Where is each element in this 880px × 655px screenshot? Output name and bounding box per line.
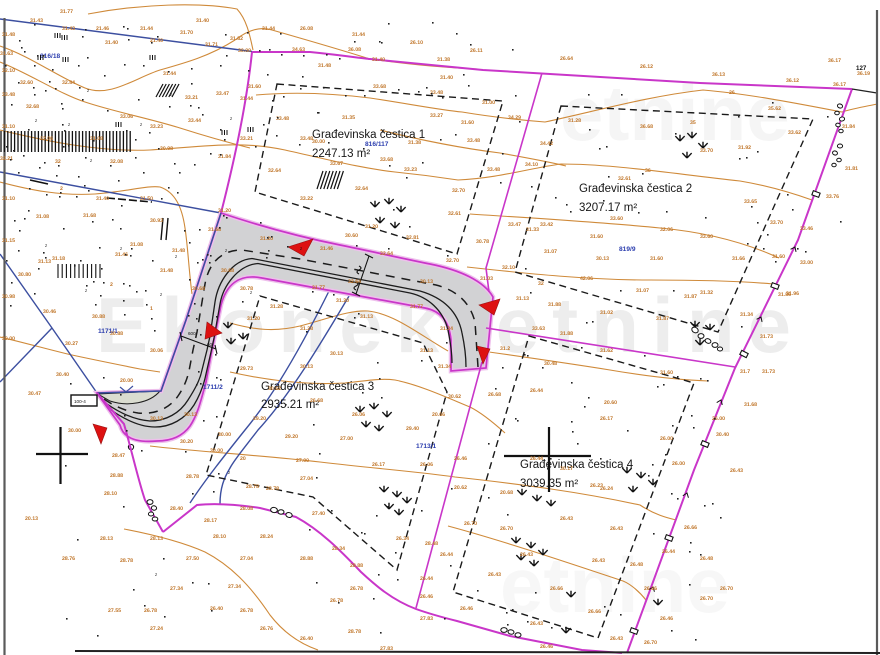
- svg-text:26.66: 26.66: [684, 525, 697, 531]
- svg-text:31.20: 31.20: [365, 224, 378, 230]
- svg-text:31.87: 31.87: [684, 294, 697, 300]
- svg-text:31.48: 31.48: [318, 63, 331, 69]
- svg-text:30.98: 30.98: [160, 146, 173, 152]
- svg-text:30.17: 30.17: [560, 466, 573, 472]
- svg-text:33.48: 33.48: [467, 138, 480, 144]
- svg-text:26.06: 26.06: [420, 462, 433, 468]
- svg-text:26.44: 26.44: [662, 549, 675, 555]
- svg-text:819/9: 819/9: [619, 246, 636, 253]
- svg-text:33.70: 33.70: [770, 220, 783, 226]
- svg-text:30.13: 30.13: [184, 412, 197, 418]
- svg-text:27.34: 27.34: [228, 584, 241, 590]
- svg-text:31.40: 31.40: [440, 75, 453, 81]
- svg-text:36.17: 36.17: [833, 82, 846, 88]
- svg-text:3039.35 m²: 3039.35 m²: [520, 478, 578, 490]
- svg-text:32.81: 32.81: [406, 235, 419, 241]
- svg-text:28.76: 28.76: [62, 556, 75, 562]
- svg-text:26.44: 26.44: [420, 576, 433, 582]
- svg-text:33.68: 33.68: [373, 84, 386, 90]
- svg-text:26.00: 26.00: [712, 416, 725, 422]
- svg-text:31.2: 31.2: [500, 346, 510, 352]
- svg-text:21.46: 21.46: [96, 26, 109, 32]
- svg-text:30.13: 30.13: [330, 351, 343, 357]
- svg-text:31.18: 31.18: [52, 256, 65, 262]
- svg-text:30.68: 30.68: [192, 286, 205, 292]
- svg-text:26.70: 26.70: [700, 596, 713, 602]
- svg-text:28.10: 28.10: [213, 534, 226, 540]
- svg-text:33.42: 33.42: [540, 222, 553, 228]
- svg-text:33.48: 33.48: [300, 136, 313, 142]
- svg-text:32.61: 32.61: [618, 176, 631, 182]
- svg-text:31.43: 31.43: [62, 26, 75, 32]
- svg-text:28.17: 28.17: [204, 518, 217, 524]
- svg-text:32.70: 32.70: [452, 188, 465, 194]
- svg-text:35.62: 35.62: [768, 106, 781, 112]
- svg-text:27.83: 27.83: [420, 616, 433, 622]
- svg-text:26.66: 26.66: [588, 609, 601, 615]
- svg-text:26.76: 26.76: [260, 626, 273, 632]
- svg-text:32.10: 32.10: [502, 265, 515, 271]
- svg-text:32: 32: [538, 281, 544, 287]
- svg-text:27.00: 27.00: [296, 458, 309, 464]
- svg-text:28.40: 28.40: [170, 506, 183, 512]
- svg-text:31.32: 31.32: [700, 290, 713, 296]
- svg-text:26.00: 26.00: [660, 436, 673, 442]
- svg-text:33.67: 33.67: [330, 161, 343, 167]
- svg-text:32.64: 32.64: [355, 186, 368, 192]
- svg-text:31.34: 31.34: [440, 326, 453, 332]
- svg-text:28.34: 28.34: [332, 546, 345, 552]
- svg-text:33.21: 33.21: [240, 136, 253, 142]
- svg-text:etnine: etnine: [500, 541, 730, 629]
- svg-text:31.81: 31.81: [845, 166, 858, 172]
- svg-text:31.28: 31.28: [270, 304, 283, 310]
- svg-text:30.13: 30.13: [596, 256, 609, 262]
- svg-text:33.23: 33.23: [404, 167, 417, 173]
- svg-text:31.08: 31.08: [36, 214, 49, 220]
- svg-text:30.40: 30.40: [716, 432, 729, 438]
- svg-text:100-4: 100-4: [74, 399, 86, 404]
- svg-text:28.78: 28.78: [348, 629, 361, 635]
- svg-text:33.60: 33.60: [700, 234, 713, 240]
- svg-text:30.00: 30.00: [68, 428, 81, 434]
- svg-text:32.60: 32.60: [20, 80, 33, 86]
- svg-text:32.06: 32.06: [660, 227, 673, 233]
- svg-text:32.64: 32.64: [348, 279, 361, 285]
- svg-text:33.00: 33.00: [800, 260, 813, 266]
- svg-text:30.60: 30.60: [345, 233, 358, 239]
- svg-text:26.46: 26.46: [660, 616, 673, 622]
- svg-text:28.47: 28.47: [112, 453, 125, 459]
- svg-text:30.98: 30.98: [2, 294, 15, 300]
- svg-text:26.12: 26.12: [640, 64, 653, 70]
- svg-text:33.62: 33.62: [788, 130, 801, 136]
- svg-text:36: 36: [645, 168, 651, 174]
- svg-text:2247.13 m²: 2247.13 m²: [312, 148, 370, 160]
- svg-text:31.77: 31.77: [60, 9, 73, 15]
- svg-text:26.43: 26.43: [560, 516, 573, 522]
- svg-text:30.00: 30.00: [2, 336, 15, 342]
- svg-text:30.00: 30.00: [312, 139, 325, 145]
- svg-text:30.27: 30.27: [65, 341, 78, 347]
- svg-text:27.83: 27.83: [380, 646, 393, 652]
- svg-text:600: 600: [188, 331, 196, 336]
- svg-text:1711/2: 1711/2: [203, 384, 223, 391]
- svg-text:34.29: 34.29: [508, 115, 521, 121]
- svg-text:26.17: 26.17: [600, 416, 613, 422]
- svg-text:36.19: 36.19: [857, 71, 870, 77]
- svg-text:36.08: 36.08: [348, 47, 361, 53]
- svg-text:30.48: 30.48: [544, 361, 557, 367]
- svg-text:26.48: 26.48: [700, 556, 713, 562]
- svg-text:20.60: 20.60: [604, 400, 617, 406]
- svg-text:20.13: 20.13: [25, 516, 38, 522]
- svg-text:31.88: 31.88: [560, 331, 573, 337]
- svg-text:28.08: 28.08: [240, 506, 253, 512]
- svg-text:31.08: 31.08: [130, 242, 143, 248]
- svg-text:20.00: 20.00: [120, 378, 133, 384]
- svg-text:30.06: 30.06: [150, 348, 163, 354]
- svg-text:31.38: 31.38: [437, 57, 450, 63]
- svg-text:31.48: 31.48: [160, 268, 173, 274]
- svg-text:30.93: 30.93: [150, 218, 163, 224]
- svg-text:32.68: 32.68: [26, 104, 39, 110]
- svg-text:30.20: 30.20: [180, 439, 193, 445]
- svg-text:30.13: 30.13: [150, 416, 163, 422]
- svg-text:31.48: 31.48: [172, 248, 185, 254]
- svg-text:28.78: 28.78: [266, 486, 279, 492]
- svg-text:31.60: 31.60: [248, 84, 261, 90]
- svg-text:36.12: 36.12: [786, 78, 799, 84]
- svg-text:2: 2: [110, 282, 113, 288]
- svg-text:33.06: 33.06: [120, 114, 133, 120]
- svg-text:29.40: 29.40: [406, 426, 419, 432]
- svg-text:26.70: 26.70: [464, 521, 477, 527]
- svg-text:26.43: 26.43: [730, 468, 743, 474]
- svg-text:26.70: 26.70: [500, 526, 513, 532]
- svg-text:31.73: 31.73: [760, 334, 773, 340]
- svg-text:31.60: 31.60: [772, 254, 785, 260]
- svg-text:26.43: 26.43: [610, 526, 623, 532]
- svg-text:28.78: 28.78: [120, 558, 133, 564]
- svg-text:27.55: 27.55: [108, 608, 121, 614]
- svg-text:26.46: 26.46: [540, 644, 553, 650]
- svg-text:27.00: 27.00: [340, 436, 353, 442]
- svg-text:32.70: 32.70: [446, 258, 459, 264]
- svg-text:31.82: 31.82: [230, 36, 243, 42]
- svg-text:2: 2: [60, 186, 63, 192]
- svg-text:31.60: 31.60: [590, 234, 603, 240]
- svg-text:31.44: 31.44: [240, 96, 253, 102]
- svg-text:22.06: 22.06: [40, 136, 53, 142]
- svg-text:28.24: 28.24: [260, 534, 273, 540]
- svg-text:31.08: 31.08: [90, 136, 103, 142]
- svg-text:29.20: 29.20: [253, 416, 266, 422]
- svg-text:27.50: 27.50: [186, 556, 199, 562]
- svg-text:35: 35: [690, 120, 696, 126]
- svg-text:30.62: 30.62: [268, 386, 281, 392]
- svg-text:31.62: 31.62: [600, 348, 613, 354]
- svg-text:26.46: 26.46: [454, 456, 467, 462]
- svg-text:31.40: 31.40: [105, 40, 118, 46]
- svg-text:33.63: 33.63: [532, 326, 545, 332]
- svg-text:816/117: 816/117: [365, 141, 389, 148]
- svg-text:31.20: 31.20: [336, 298, 349, 304]
- svg-text:33.48: 33.48: [2, 92, 15, 98]
- svg-text:34.42: 34.42: [540, 141, 553, 147]
- svg-text:26.78: 26.78: [240, 608, 253, 614]
- svg-text:28.78: 28.78: [186, 474, 199, 480]
- svg-text:26.44: 26.44: [530, 388, 543, 394]
- svg-text:30.80: 30.80: [18, 272, 31, 278]
- svg-text:31.7: 31.7: [740, 369, 750, 375]
- svg-text:31.07: 31.07: [544, 249, 557, 255]
- svg-text:26.43: 26.43: [488, 572, 501, 578]
- svg-text:31.84: 31.84: [218, 154, 231, 160]
- svg-text:31.70: 31.70: [180, 30, 193, 36]
- svg-text:33.48: 33.48: [276, 116, 289, 122]
- svg-text:32.64: 32.64: [268, 168, 281, 174]
- svg-text:Građevinska čestica 2: Građevinska čestica 2: [579, 183, 692, 195]
- svg-text:33.47: 33.47: [216, 91, 229, 97]
- svg-text:20.66: 20.66: [432, 412, 445, 418]
- svg-text:31.20: 31.20: [247, 316, 260, 322]
- svg-text:31.71: 31.71: [205, 42, 218, 48]
- svg-text:31.02: 31.02: [600, 310, 613, 316]
- svg-text:31.44: 31.44: [262, 26, 275, 32]
- svg-text:26.43: 26.43: [520, 552, 533, 558]
- svg-text:30.46: 30.46: [43, 309, 56, 315]
- svg-text:31.40: 31.40: [96, 196, 109, 202]
- svg-text:3207.17 m²: 3207.17 m²: [579, 202, 637, 214]
- svg-text:27.04: 27.04: [300, 476, 313, 482]
- svg-text:26.08: 26.08: [300, 26, 313, 32]
- svg-text:31.38: 31.38: [408, 140, 421, 146]
- svg-text:31.68: 31.68: [744, 402, 757, 408]
- svg-text:31.13: 31.13: [38, 259, 51, 265]
- svg-text:30.62: 30.62: [448, 394, 461, 400]
- svg-text:32.64: 32.64: [380, 251, 393, 257]
- svg-text:31.33: 31.33: [526, 227, 539, 233]
- svg-text:26.48: 26.48: [630, 562, 643, 568]
- svg-text:31.34: 31.34: [438, 364, 451, 370]
- svg-text:31.50: 31.50: [140, 196, 153, 202]
- svg-text:34.10: 34.10: [525, 162, 538, 168]
- svg-text:31.40: 31.40: [372, 57, 385, 63]
- svg-text:28.13: 28.13: [100, 536, 113, 542]
- svg-text:26.43: 26.43: [592, 558, 605, 564]
- svg-text:32.84: 32.84: [62, 80, 75, 86]
- svg-text:26.40: 26.40: [300, 636, 313, 642]
- svg-text:33.76: 33.76: [826, 194, 839, 200]
- svg-text:26.68: 26.68: [488, 392, 501, 398]
- svg-text:42.06: 42.06: [580, 276, 593, 282]
- svg-text:33.23: 33.23: [150, 124, 163, 130]
- svg-text:31.40: 31.40: [196, 18, 209, 24]
- svg-text:20.68: 20.68: [500, 490, 513, 496]
- svg-text:26.06: 26.06: [352, 412, 365, 418]
- svg-text:33.46: 33.46: [800, 226, 813, 232]
- svg-text:27.04: 27.04: [240, 556, 253, 562]
- svg-text:31.77: 31.77: [312, 285, 325, 291]
- svg-text:33.60: 33.60: [610, 216, 623, 222]
- svg-text:32.10: 32.10: [2, 68, 15, 74]
- svg-text:30.68: 30.68: [221, 268, 234, 274]
- svg-text:30.00: 30.00: [218, 432, 231, 438]
- svg-text:31.66: 31.66: [732, 256, 745, 262]
- svg-text:33.65: 33.65: [744, 199, 757, 205]
- svg-text:31.60: 31.60: [660, 370, 673, 376]
- svg-text:31.46: 31.46: [320, 246, 333, 252]
- svg-text:31.15: 31.15: [2, 238, 15, 244]
- svg-text:30.40: 30.40: [56, 372, 69, 378]
- svg-text:30.88: 30.88: [110, 331, 123, 337]
- svg-text:33.22: 33.22: [300, 196, 313, 202]
- svg-text:31.13: 31.13: [420, 348, 433, 354]
- svg-text:31.07: 31.07: [636, 288, 649, 294]
- svg-text:26.34: 26.34: [396, 536, 409, 542]
- svg-text:31.68: 31.68: [83, 213, 96, 219]
- svg-text:26.00: 26.00: [672, 461, 685, 467]
- svg-text:26.68: 26.68: [310, 398, 323, 404]
- svg-text:33.70: 33.70: [700, 148, 713, 154]
- svg-text:26.64: 26.64: [560, 56, 573, 62]
- svg-text:26.46: 26.46: [460, 606, 473, 612]
- svg-text:30.00: 30.00: [238, 48, 251, 54]
- svg-text:30.88: 30.88: [92, 314, 105, 320]
- svg-text:26.46: 26.46: [420, 594, 433, 600]
- svg-text:30.78: 30.78: [476, 239, 489, 245]
- svg-text:31.88: 31.88: [548, 302, 561, 308]
- svg-text:31.60: 31.60: [650, 256, 663, 262]
- svg-text:31.03: 31.03: [480, 276, 493, 282]
- svg-text:60: 60: [207, 342, 213, 347]
- svg-text:28.88: 28.88: [110, 473, 123, 479]
- svg-text:1713/1: 1713/1: [416, 443, 437, 450]
- svg-text:26.17: 26.17: [372, 462, 385, 468]
- svg-text:32.08: 32.08: [110, 159, 123, 165]
- svg-text:31.87: 31.87: [656, 316, 669, 322]
- svg-text:28.13: 28.13: [150, 536, 163, 542]
- svg-text:30.13: 30.13: [420, 279, 433, 285]
- svg-text:31.10: 31.10: [2, 124, 15, 130]
- svg-text:31.44: 31.44: [352, 32, 365, 38]
- svg-text:32: 32: [55, 159, 61, 165]
- svg-text:26.10: 26.10: [410, 40, 423, 46]
- svg-text:33.27: 33.27: [430, 113, 443, 119]
- svg-text:26.44: 26.44: [530, 456, 543, 462]
- svg-text:33.48: 33.48: [487, 167, 500, 173]
- svg-text:36.68: 36.68: [640, 124, 653, 130]
- svg-text:27.40: 27.40: [312, 511, 325, 517]
- svg-text:28.88: 28.88: [350, 563, 363, 569]
- svg-text:1: 1: [150, 306, 153, 312]
- svg-text:27.34: 27.34: [170, 586, 183, 592]
- svg-text:30.47: 30.47: [28, 391, 41, 397]
- svg-text:31.92: 31.92: [738, 145, 751, 151]
- svg-text:26.43: 26.43: [610, 636, 623, 642]
- svg-text:33.47: 33.47: [508, 222, 521, 228]
- svg-text:31.43: 31.43: [30, 18, 43, 24]
- svg-text:31.13: 31.13: [516, 296, 529, 302]
- svg-text:33.68: 33.68: [380, 157, 393, 163]
- svg-text:33.44: 33.44: [188, 118, 201, 124]
- svg-text:30.13: 30.13: [300, 364, 313, 370]
- svg-text:26.70: 26.70: [720, 586, 733, 592]
- svg-text:26.44: 26.44: [440, 552, 453, 558]
- svg-text:26.24: 26.24: [600, 486, 613, 492]
- svg-text:31.73: 31.73: [762, 369, 775, 375]
- svg-text:26.78: 26.78: [350, 586, 363, 592]
- svg-text:26.78: 26.78: [330, 598, 343, 604]
- svg-text:31.10: 31.10: [2, 196, 15, 202]
- svg-text:31.28: 31.28: [568, 118, 581, 124]
- svg-text:31.13: 31.13: [360, 314, 373, 320]
- svg-text:31.34: 31.34: [740, 312, 753, 318]
- svg-text:28.78: 28.78: [246, 484, 259, 490]
- svg-text:26.70: 26.70: [644, 640, 657, 646]
- svg-text:28.10: 28.10: [104, 491, 117, 497]
- svg-text:28.48: 28.48: [425, 541, 438, 547]
- svg-text:20: 20: [240, 456, 246, 462]
- svg-text:31.44: 31.44: [140, 26, 153, 32]
- svg-text:31.48: 31.48: [2, 32, 15, 38]
- svg-text:29.20: 29.20: [285, 434, 298, 440]
- svg-text:33.21: 33.21: [185, 95, 198, 101]
- svg-text:26.66: 26.66: [644, 586, 657, 592]
- svg-text:26.43: 26.43: [530, 621, 543, 627]
- svg-text:28.88: 28.88: [300, 556, 313, 562]
- svg-text:31.77: 31.77: [410, 304, 423, 310]
- svg-text:31.84: 31.84: [842, 124, 855, 130]
- svg-text:26: 26: [729, 90, 735, 96]
- svg-text:31.20: 31.20: [218, 208, 231, 214]
- svg-text:30.00: 30.00: [210, 448, 223, 454]
- svg-text:32.61: 32.61: [448, 211, 461, 217]
- svg-text:31.86: 31.86: [778, 292, 791, 298]
- svg-text:34.63: 34.63: [292, 47, 305, 53]
- svg-text:31.60: 31.60: [461, 120, 474, 126]
- svg-text:27.24: 27.24: [150, 626, 163, 632]
- svg-text:31.00: 31.00: [482, 100, 495, 106]
- svg-text:26.78: 26.78: [144, 608, 157, 614]
- svg-text:31.35: 31.35: [342, 115, 355, 121]
- svg-text:26.66: 26.66: [550, 586, 563, 592]
- svg-text:20.62: 20.62: [454, 485, 467, 491]
- svg-text:36.13: 36.13: [712, 72, 725, 78]
- svg-text:26.11: 26.11: [470, 48, 483, 54]
- svg-text:36.17: 36.17: [828, 58, 841, 64]
- svg-text:29.73: 29.73: [240, 366, 253, 372]
- svg-text:31.63: 31.63: [0, 51, 13, 57]
